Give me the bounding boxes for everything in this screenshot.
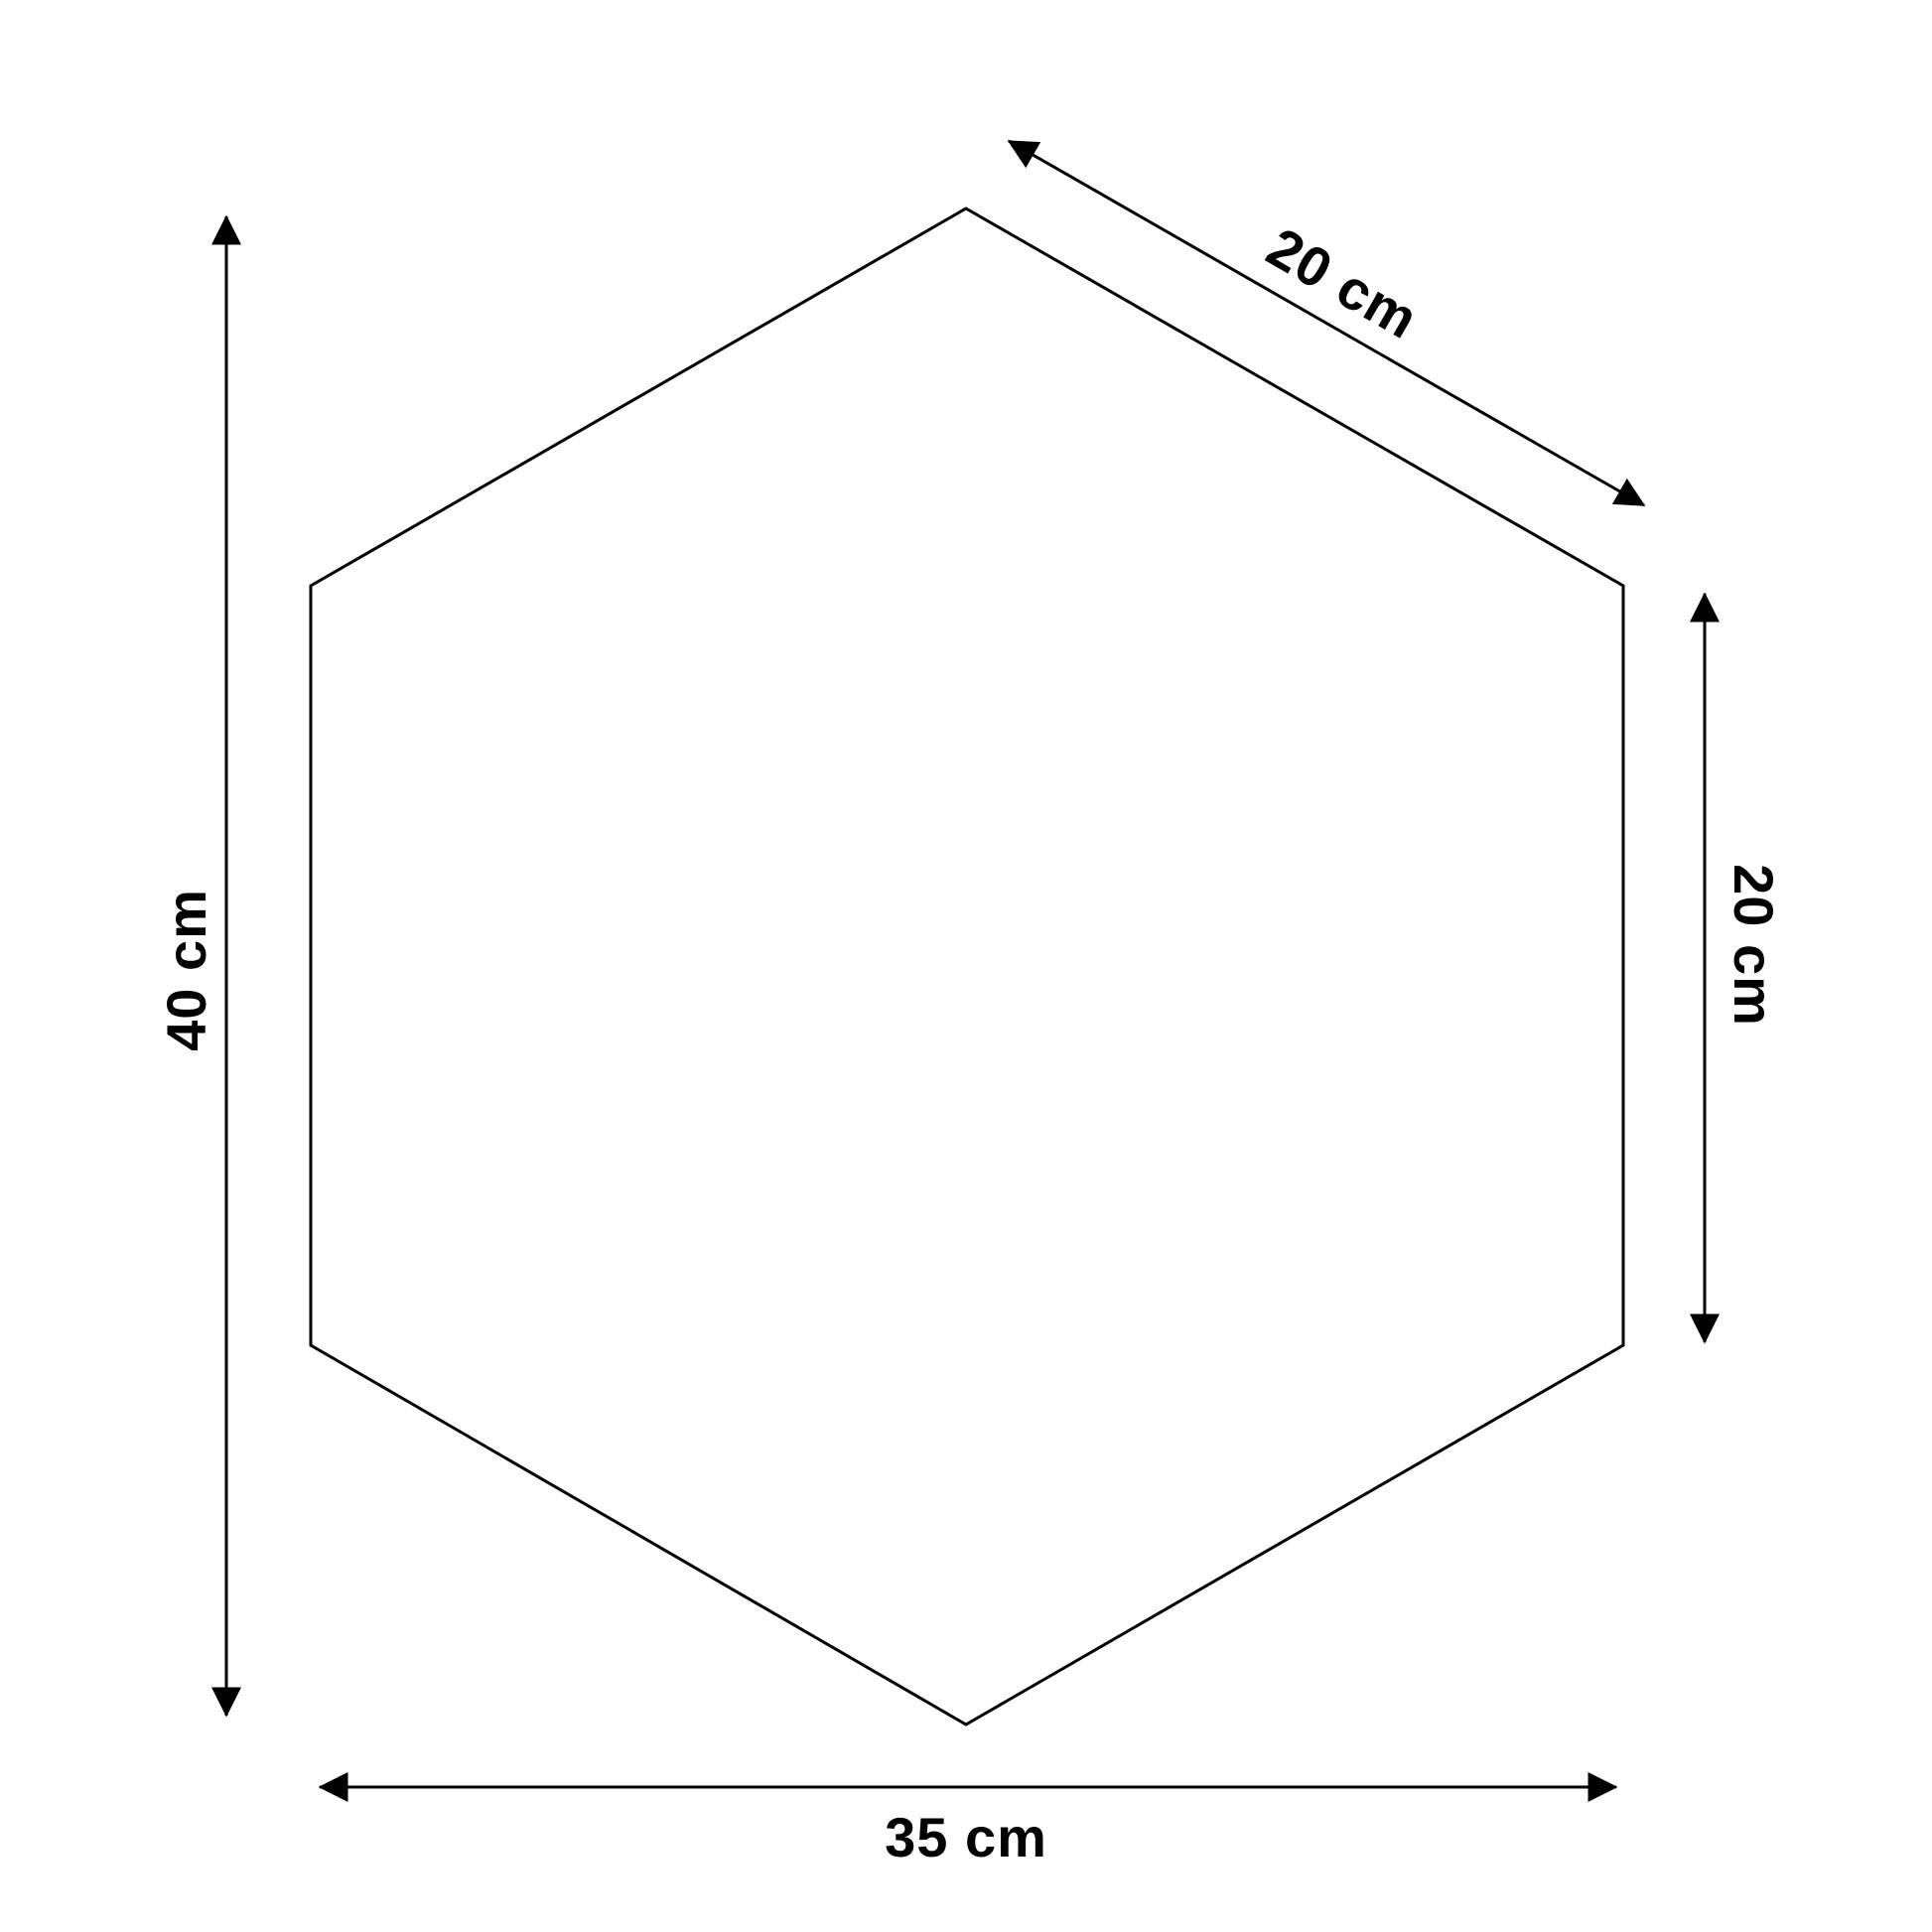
height-dimension-label: 40 cm — [155, 889, 217, 1051]
diagram-canvas: 40 cm 20 cm 20 cm 35 cm — [0, 0, 1932, 1932]
hexagon-outline — [311, 208, 1623, 1725]
top-edge-dimension-label: 20 cm — [1257, 215, 1429, 350]
width-dimension-label: 35 cm — [885, 1806, 1047, 1868]
dimension-diagram: 40 cm 20 cm 20 cm 35 cm — [0, 0, 1932, 1932]
right-edge-dimension-label: 20 cm — [1723, 864, 1785, 1027]
